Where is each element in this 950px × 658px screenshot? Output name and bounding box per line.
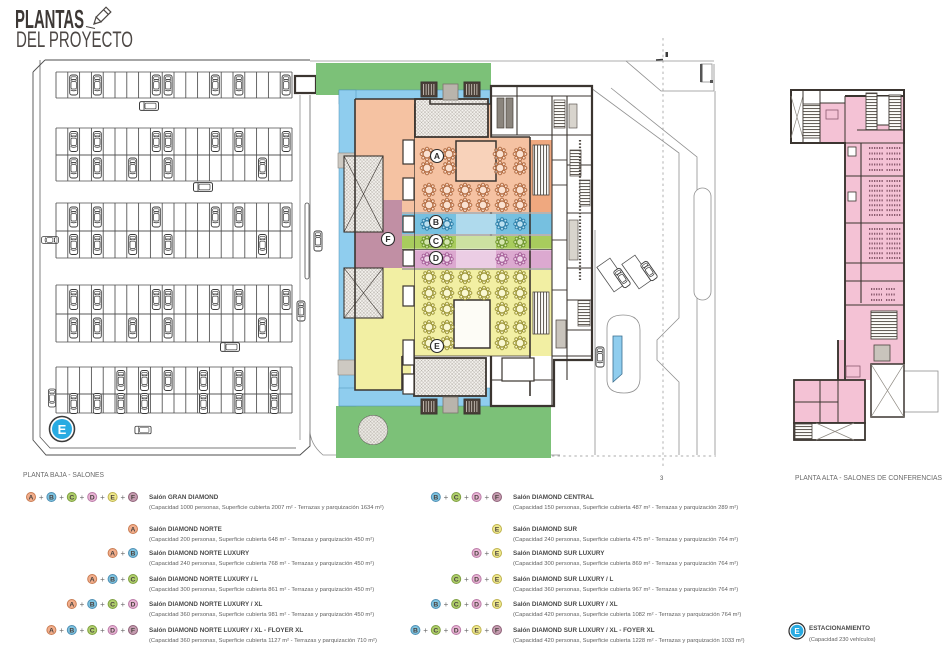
svg-text:(Capacidad 360 personas, Super: (Capacidad 360 personas, Superficie cubi…	[149, 638, 377, 644]
svg-text:A: A	[49, 628, 54, 635]
svg-text:A: A	[90, 577, 95, 584]
svg-text:B: B	[433, 602, 438, 609]
svg-text:Salón DIAMOND NORTE LUXURY: Salón DIAMOND NORTE LUXURY	[149, 550, 250, 557]
svg-text:F: F	[131, 628, 135, 635]
svg-text:Salón DIAMOND SUR LUXURY: Salón DIAMOND SUR LUXURY	[513, 550, 605, 557]
svg-text:D: D	[454, 628, 459, 635]
svg-text:D: D	[110, 628, 115, 635]
svg-text:+: +	[59, 493, 64, 502]
svg-text:+: +	[444, 600, 449, 609]
svg-text:+: +	[39, 493, 44, 502]
svg-text:A: A	[434, 151, 440, 161]
svg-text:F: F	[495, 628, 499, 635]
svg-text:D: D	[131, 602, 136, 609]
svg-text:C: C	[110, 602, 115, 609]
svg-text:D: D	[474, 495, 479, 502]
svg-text:+: +	[120, 626, 125, 635]
svg-text:C: C	[131, 577, 136, 584]
svg-text:D: D	[90, 495, 95, 502]
svg-text:D: D	[474, 551, 479, 558]
svg-text:Salón DIAMOND SUR: Salón DIAMOND SUR	[513, 526, 577, 533]
svg-text:(Capacidad 240 personas, Super: (Capacidad 240 personas, Superficie cubi…	[513, 537, 738, 543]
svg-text:F: F	[495, 495, 499, 502]
svg-text:E: E	[495, 551, 500, 558]
svg-text:(Capacidad 300 personas, Super: (Capacidad 300 personas, Superficie cubi…	[513, 561, 738, 567]
svg-text:(Capacidad 200 personas, Super: (Capacidad 200 personas, Superficie cubi…	[149, 537, 374, 543]
svg-text:+: +	[120, 575, 125, 584]
svg-text:+: +	[484, 493, 489, 502]
svg-text:+: +	[444, 626, 449, 635]
svg-text:C: C	[454, 602, 459, 609]
svg-text:E: E	[495, 527, 500, 534]
svg-text:Salón DIAMOND SUR LUXURY / XL: Salón DIAMOND SUR LUXURY / XL - FOYER XL	[513, 627, 655, 634]
svg-text:C: C	[454, 577, 459, 584]
svg-text:PLANTA ALTA - SALONES DE CONFE: PLANTA ALTA - SALONES DE CONFERENCIAS	[795, 475, 942, 482]
svg-text:Salón DIAMOND NORTE LUXURY / X: Salón DIAMOND NORTE LUXURY / XL - FLOYER…	[149, 627, 303, 634]
svg-text:+: +	[100, 575, 105, 584]
svg-text:E: E	[495, 602, 500, 609]
svg-text:A: A	[29, 495, 34, 502]
svg-text:PLANTA BAJA - SALONES: PLANTA BAJA - SALONES	[23, 472, 104, 479]
svg-text:+: +	[444, 493, 449, 502]
svg-text:(Capacidad 150 personas, Super: (Capacidad 150 personas, Superficie cubi…	[513, 505, 738, 511]
svg-text:+: +	[484, 626, 489, 635]
svg-text:+: +	[120, 493, 125, 502]
svg-text:E: E	[434, 341, 440, 351]
svg-text:+: +	[484, 575, 489, 584]
svg-text:+: +	[100, 626, 105, 635]
svg-text:+: +	[100, 493, 105, 502]
svg-text:B: B	[69, 628, 74, 635]
svg-text:+: +	[464, 600, 469, 609]
svg-text:D: D	[474, 602, 479, 609]
svg-text:+: +	[484, 549, 489, 558]
svg-text:F: F	[131, 495, 135, 502]
svg-text:C: C	[433, 628, 438, 635]
svg-text:Salón DIAMOND NORTE LUXURY / X: Salón DIAMOND NORTE LUXURY / XL	[149, 601, 263, 608]
svg-text:C: C	[454, 495, 459, 502]
svg-text:+: +	[423, 626, 428, 635]
svg-text:(Capacidad 300 personas, Super: (Capacidad 300 personas, Superficie cubi…	[149, 587, 374, 593]
svg-text:(Capacidad 360 personas, Super: (Capacidad 360 personas, Superficie cubi…	[149, 612, 374, 618]
svg-text:Salón DIAMOND SUR LUXURY / L: Salón DIAMOND SUR LUXURY / L	[513, 576, 614, 583]
svg-text:ESTACIONAMIENTO: ESTACIONAMIENTO	[809, 625, 870, 632]
svg-text:+: +	[120, 600, 125, 609]
svg-text:+: +	[80, 626, 85, 635]
svg-text:D: D	[433, 253, 439, 263]
svg-text:+: +	[464, 626, 469, 635]
svg-text:B: B	[433, 217, 439, 227]
svg-text:B: B	[90, 602, 95, 609]
svg-text:E: E	[794, 627, 800, 636]
svg-text:Salón DIAMOND CENTRAL: Salón DIAMOND CENTRAL	[513, 494, 594, 501]
svg-text:+: +	[59, 626, 64, 635]
svg-text:B: B	[433, 495, 438, 502]
svg-text:(Capacidad 420 personas, Super: (Capacidad 420 personas, Superficie cubi…	[513, 638, 745, 644]
svg-text:+: +	[484, 600, 489, 609]
svg-text:Salón DIAMOND SUR LUXURY / XL: Salón DIAMOND SUR LUXURY / XL	[513, 601, 618, 608]
svg-text:B: B	[110, 577, 115, 584]
svg-text:(Capacidad 240 personas, Super: (Capacidad 240 personas, Superficie cubi…	[149, 561, 374, 567]
svg-text:E: E	[495, 577, 500, 584]
svg-text:Salón GRAN DIAMOND: Salón GRAN DIAMOND	[149, 494, 219, 501]
svg-text:Salón DIAMOND NORTE LUXURY / L: Salón DIAMOND NORTE LUXURY / L	[149, 576, 258, 583]
svg-text:E: E	[58, 422, 67, 437]
svg-text:+: +	[120, 549, 125, 558]
svg-text:E: E	[110, 495, 115, 502]
svg-text:Salón DIAMOND NORTE: Salón DIAMOND NORTE	[149, 526, 222, 533]
svg-text:+: +	[80, 493, 85, 502]
svg-text:+: +	[464, 575, 469, 584]
svg-text:+: +	[100, 600, 105, 609]
svg-text:F: F	[385, 234, 390, 244]
svg-text:A: A	[69, 602, 74, 609]
svg-text:C: C	[433, 236, 439, 246]
svg-text:A: A	[131, 527, 136, 534]
svg-text:E: E	[474, 628, 479, 635]
svg-text:A: A	[110, 551, 115, 558]
svg-text:B: B	[131, 551, 136, 558]
svg-text:B: B	[49, 495, 54, 502]
svg-text:(Capacidad 1000 personas, Supe: (Capacidad 1000 personas, Superficie cub…	[149, 505, 384, 511]
svg-text:B: B	[413, 628, 418, 635]
svg-text:(Capacidad 420 personas, Super: (Capacidad 420 personas, Superficie cubi…	[513, 612, 741, 618]
svg-text:(Capacidad 230 vehículos): (Capacidad 230 vehículos)	[809, 637, 876, 643]
svg-text:C: C	[69, 495, 74, 502]
svg-text:+: +	[464, 493, 469, 502]
svg-text:C: C	[90, 628, 95, 635]
svg-text:DEL PROYECTO: DEL PROYECTO	[16, 27, 133, 52]
svg-text:D: D	[474, 577, 479, 584]
svg-text:(Capacidad 360 personas, Super: (Capacidad 360 personas, Superficie cubi…	[513, 587, 738, 593]
svg-text:+: +	[80, 600, 85, 609]
